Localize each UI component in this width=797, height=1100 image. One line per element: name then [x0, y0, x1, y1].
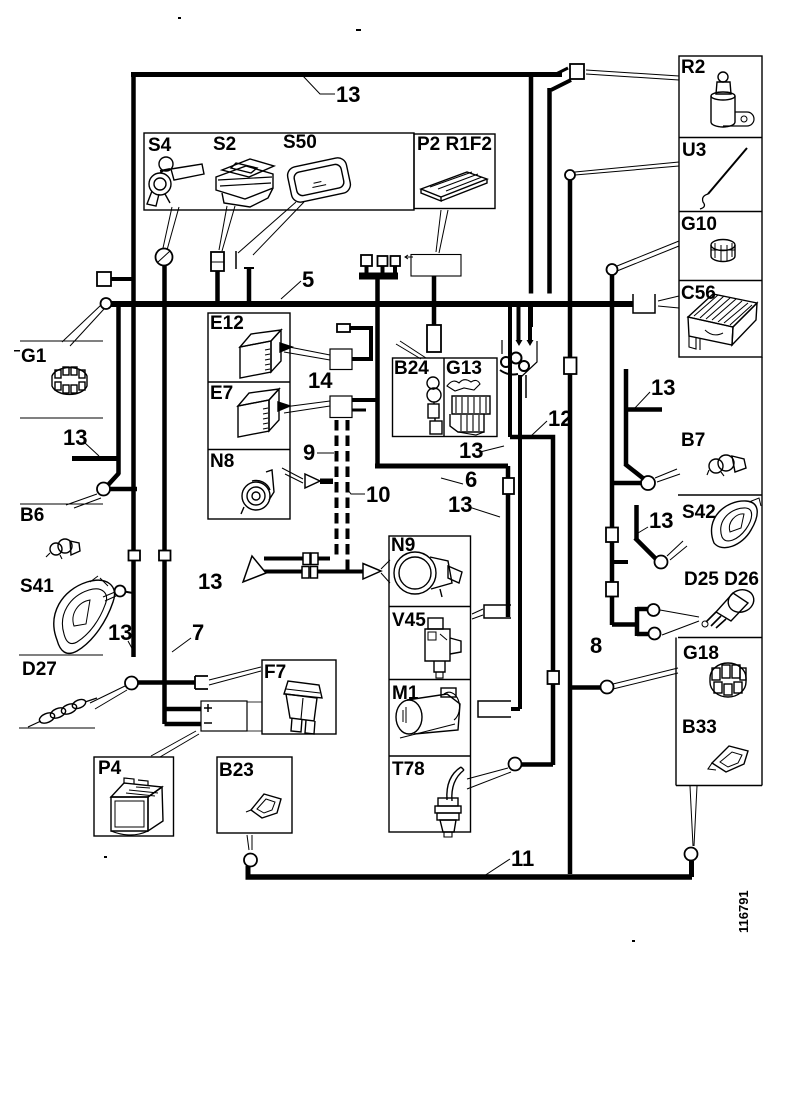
svg-text:12: 12 [548, 406, 572, 431]
svg-text:13: 13 [651, 375, 675, 400]
svg-text:B6: B6 [20, 505, 44, 526]
svg-text:U3: U3 [682, 140, 706, 161]
svg-text:G1: G1 [21, 346, 47, 367]
svg-text:8: 8 [590, 633, 602, 658]
svg-text:S42: S42 [682, 502, 716, 523]
svg-text:S41: S41 [20, 576, 54, 597]
svg-text:S50: S50 [283, 132, 317, 153]
svg-text:V45: V45 [392, 610, 426, 631]
svg-text:13: 13 [448, 492, 472, 517]
svg-text:S4: S4 [148, 135, 172, 156]
svg-text:13: 13 [63, 425, 87, 450]
svg-text:9: 9 [303, 440, 315, 465]
svg-text:E7: E7 [210, 383, 233, 404]
svg-text:7: 7 [192, 620, 204, 645]
svg-text:G10: G10 [681, 214, 717, 235]
svg-text:P4: P4 [98, 758, 122, 779]
svg-text:116791: 116791 [736, 890, 751, 933]
svg-text:10: 10 [366, 482, 390, 507]
svg-text:6: 6 [465, 467, 477, 492]
svg-text:G13: G13 [446, 358, 482, 379]
svg-text:T78: T78 [392, 759, 425, 780]
svg-text:B24: B24 [394, 358, 429, 379]
svg-text:13: 13 [649, 508, 673, 533]
svg-text:13: 13 [459, 438, 483, 463]
svg-text:13: 13 [198, 569, 222, 594]
svg-text:F7: F7 [264, 662, 286, 683]
svg-text:B23: B23 [219, 760, 254, 781]
svg-text:N8: N8 [210, 451, 234, 472]
svg-text:R2: R2 [681, 57, 705, 78]
svg-text:13: 13 [108, 620, 132, 645]
svg-text:5: 5 [302, 267, 314, 292]
svg-text:B33: B33 [682, 717, 717, 738]
svg-text:S2: S2 [213, 134, 236, 155]
svg-text:P2 R1F2: P2 R1F2 [417, 134, 492, 155]
svg-text:G18: G18 [683, 643, 719, 664]
svg-text:D27: D27 [22, 659, 57, 680]
svg-text:E12: E12 [210, 313, 244, 334]
svg-text:13: 13 [336, 82, 360, 107]
svg-text:B7: B7 [681, 430, 705, 451]
svg-text:11: 11 [511, 846, 534, 871]
svg-text:D25 D26: D25 D26 [684, 569, 759, 590]
svg-text:14: 14 [308, 368, 333, 393]
